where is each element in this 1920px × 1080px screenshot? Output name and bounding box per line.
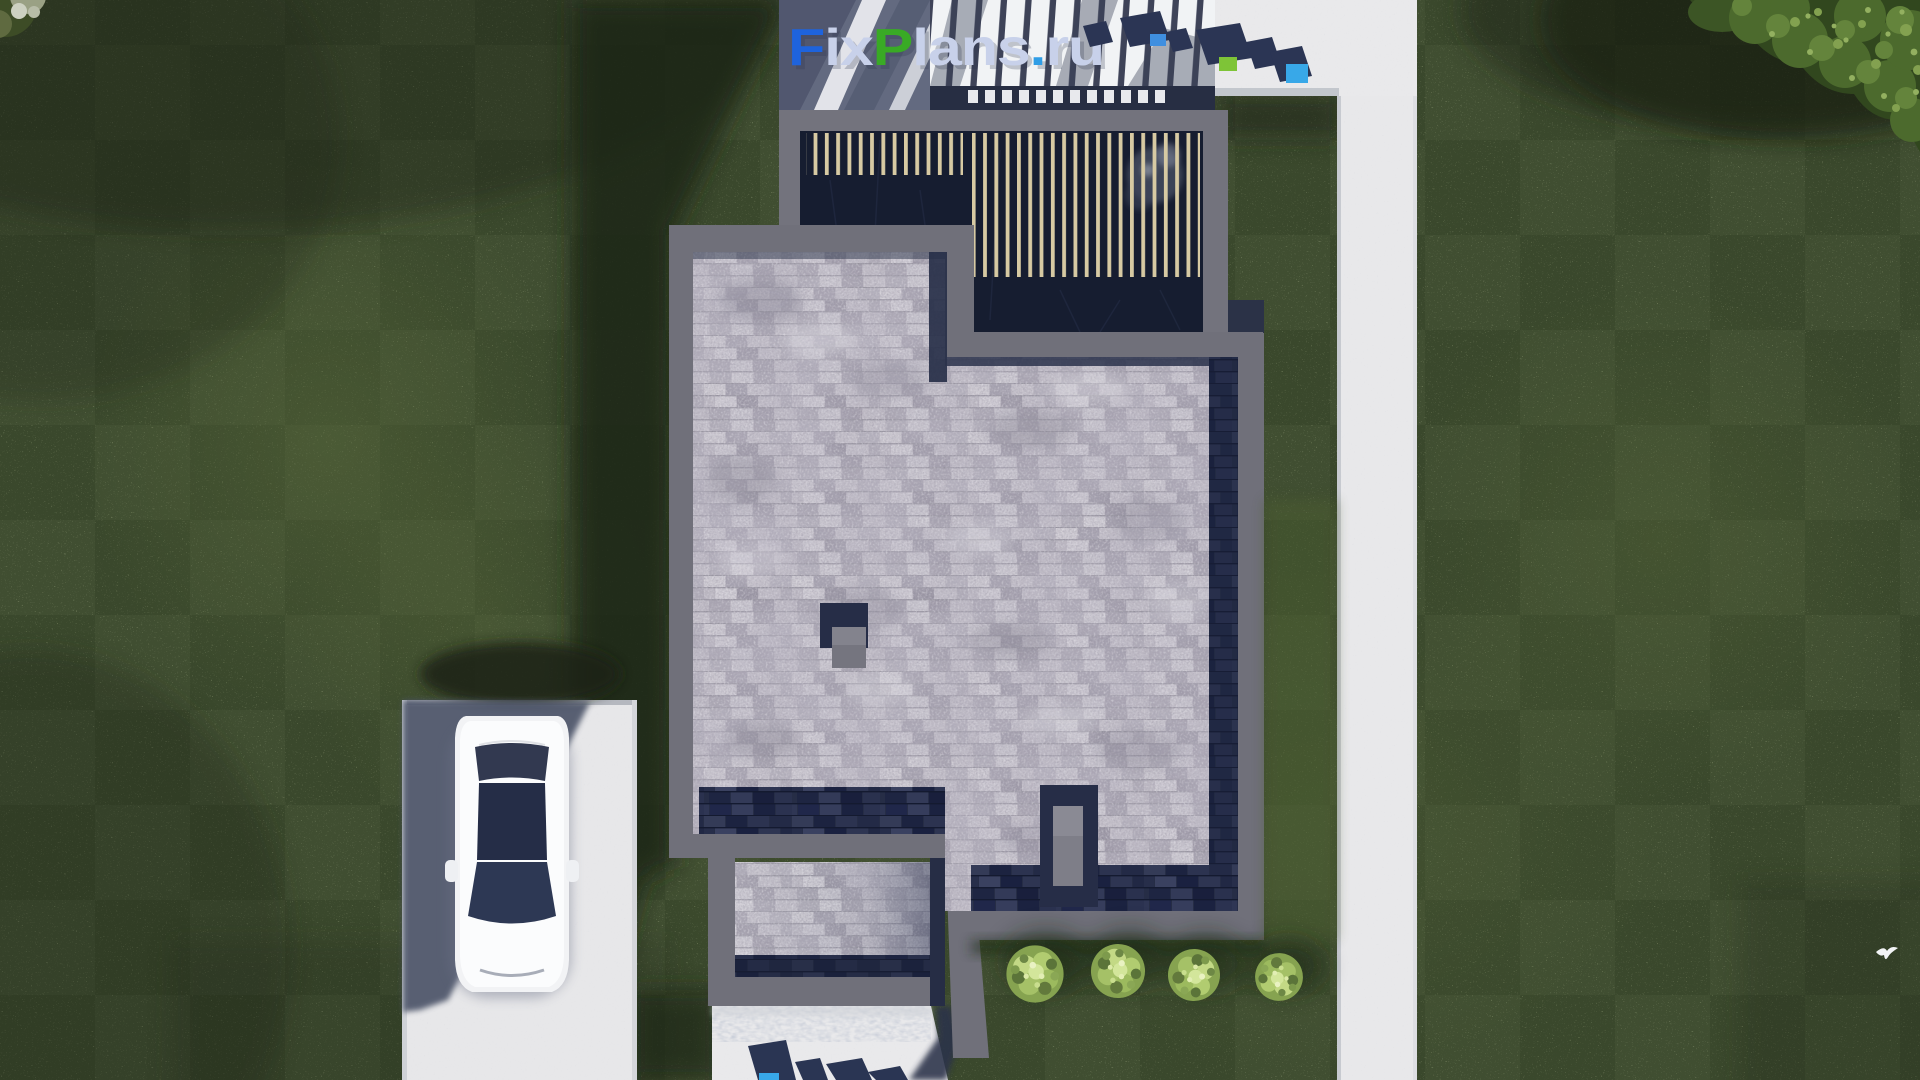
- svg-text:FixPlans.ru: FixPlans.ru: [788, 19, 1104, 77]
